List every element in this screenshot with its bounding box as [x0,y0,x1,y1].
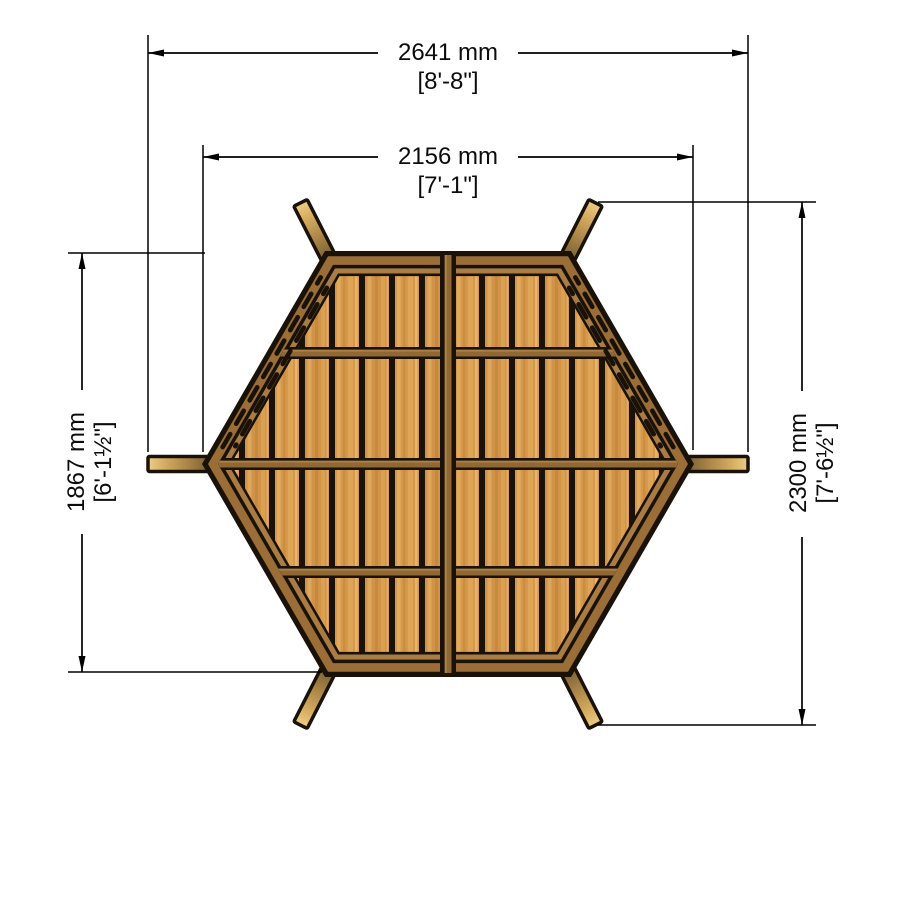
floor-plan-drawing: 2641 mm [8'-8"] 2156 mm [7'-1"] 1867 mm … [0,0,900,900]
dimension-text-metric: 2156 mm [398,143,498,170]
floor-plan-page: 2641 mm [8'-8"] 2156 mm [7'-1"] 1867 mm … [0,0,900,900]
dimension-text-metric: 1867 mm [63,412,90,512]
center-beam [440,251,456,677]
dimension-text-metric: 2641 mm [398,39,498,66]
dimension-text-imperial: [7'-6½"] [812,422,839,503]
dimension-text-metric: 2300 mm [785,413,812,513]
dimension-text-imperial: [6'-1½"] [90,421,117,502]
dimension-text-imperial: [7'-1"] [417,172,478,199]
dimension-text-imperial: [8'-8"] [417,68,478,95]
